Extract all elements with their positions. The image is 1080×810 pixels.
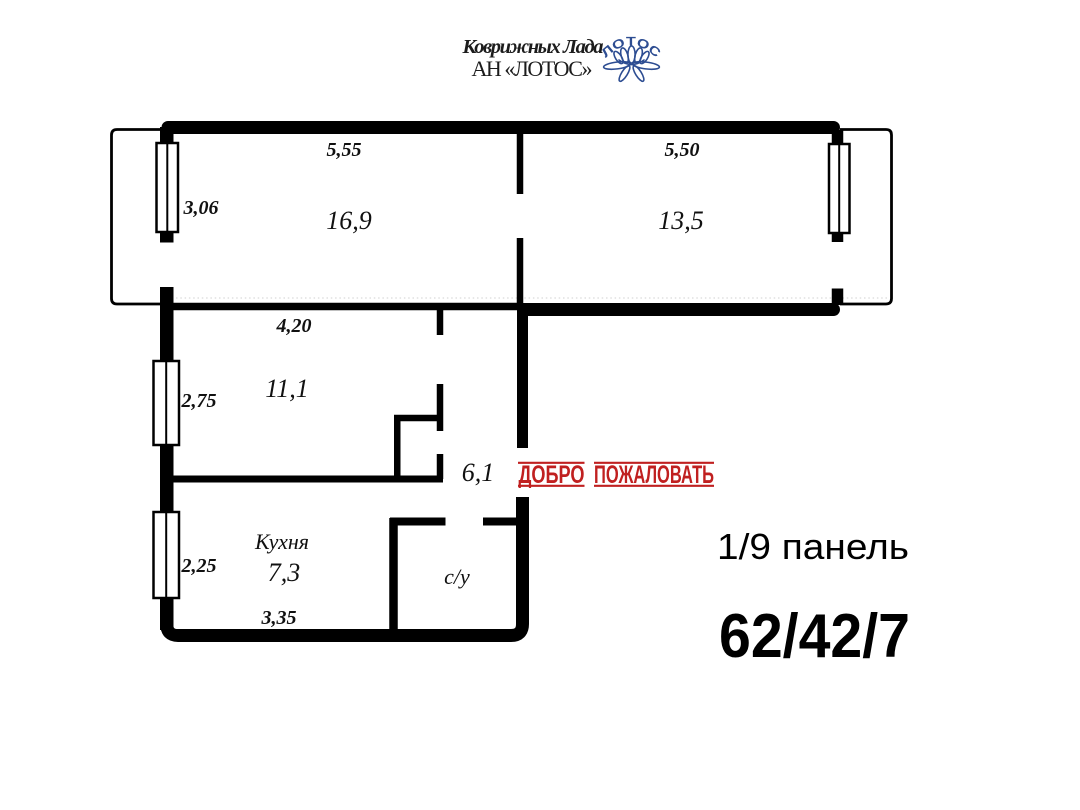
svg-text:с/у: с/у (444, 564, 470, 589)
svg-text:16,9: 16,9 (326, 206, 372, 235)
svg-text:Коврижных Лада: Коврижных Лада (462, 36, 604, 58)
svg-text:3,06: 3,06 (183, 197, 219, 219)
svg-text:13,5: 13,5 (658, 206, 704, 235)
svg-text:6,1: 6,1 (462, 458, 495, 487)
svg-text:7,3: 7,3 (268, 558, 301, 587)
svg-text:Кухня: Кухня (254, 529, 309, 554)
svg-text:АН «ЛОТОС»: АН «ЛОТОС» (472, 56, 593, 81)
svg-text:5,55: 5,55 (327, 139, 362, 161)
svg-text:ЛОТОС: ЛОТОС (599, 34, 664, 60)
svg-text:1/9 панель: 1/9 панель (717, 526, 909, 567)
svg-text:3,35: 3,35 (261, 607, 297, 629)
svg-text:2,25: 2,25 (181, 555, 217, 577)
svg-text:11,1: 11,1 (265, 374, 309, 403)
svg-text:62/42/7: 62/42/7 (719, 602, 910, 671)
svg-text:5,50: 5,50 (665, 139, 700, 161)
svg-text:2,75: 2,75 (181, 390, 217, 412)
svg-text:4,20: 4,20 (276, 315, 312, 337)
